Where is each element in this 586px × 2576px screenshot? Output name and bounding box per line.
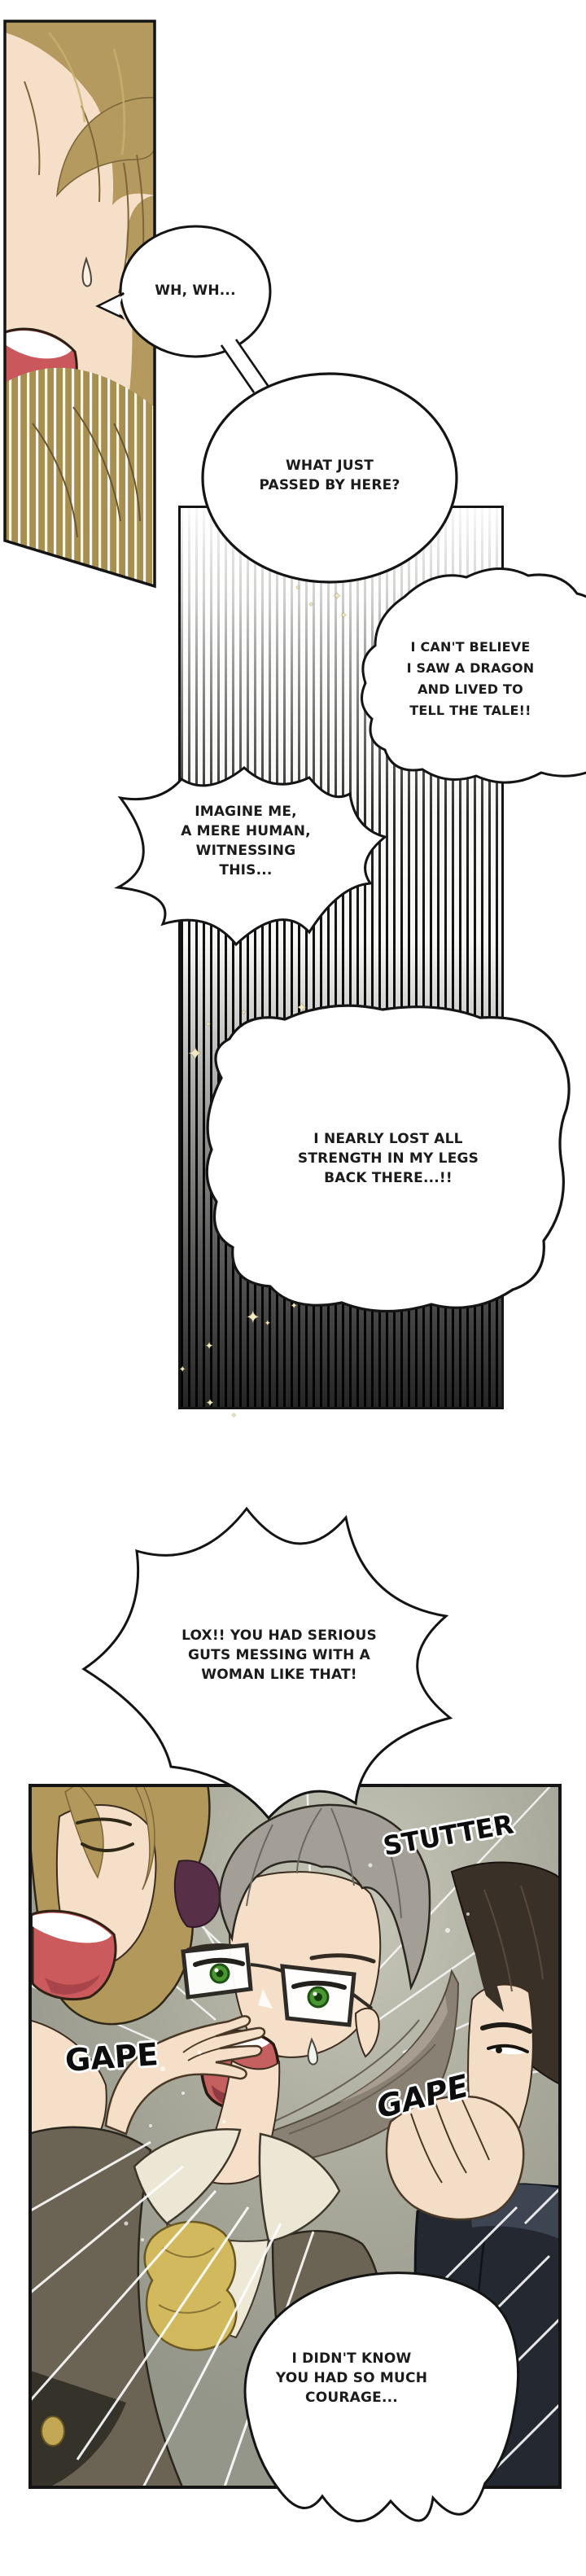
sparkle-icon: ✦ <box>265 1321 271 1328</box>
sparkle-icon: ✦ <box>205 1341 213 1351</box>
bubble-text-4: IMAGINE ME, A MERE HUMAN, WITNESSING THI… <box>140 802 352 880</box>
sparkle-icon: ✦ <box>179 1366 186 1374</box>
webtoon-page: ✦ ✦ ✦ ✦ ✦ ✦ ✦ ✦ ✦ ✦ ✦ ✦ ✦ ✦ ✦ ✦ ✦ WH, WH… <box>0 0 586 2576</box>
yellow-cravat <box>145 2222 237 2350</box>
bubble-text-7: I DIDN'T KNOW YOU HAD SO MUCH COURAGE... <box>246 2349 457 2407</box>
bubble-text-6: LOX!! YOU HAD SERIOUS GUTS MESSING WITH … <box>133 1626 426 1684</box>
bubble-text-1: WH, WH... <box>122 281 269 300</box>
hair-stripe-highlights <box>5 368 155 586</box>
sfx-gape-left: GAPE <box>64 2039 160 2076</box>
gold-button <box>42 2416 64 2446</box>
bubble-text-5: I NEARLY LOST ALL STRENGTH IN MY LEGS BA… <box>242 1129 535 1188</box>
sparkle-icon: ✦ <box>231 1413 237 1419</box>
bubble-text-3: I CAN'T BELIEVE I SAW A DRAGON AND LIVED… <box>365 637 576 721</box>
bubble-text-2: WHAT JUST PASSED BY HERE? <box>224 456 435 495</box>
pupil <box>496 2047 502 2053</box>
sparkle-icon: ✦ <box>206 1398 214 1408</box>
sparkle-icon: ✦ <box>308 602 314 608</box>
